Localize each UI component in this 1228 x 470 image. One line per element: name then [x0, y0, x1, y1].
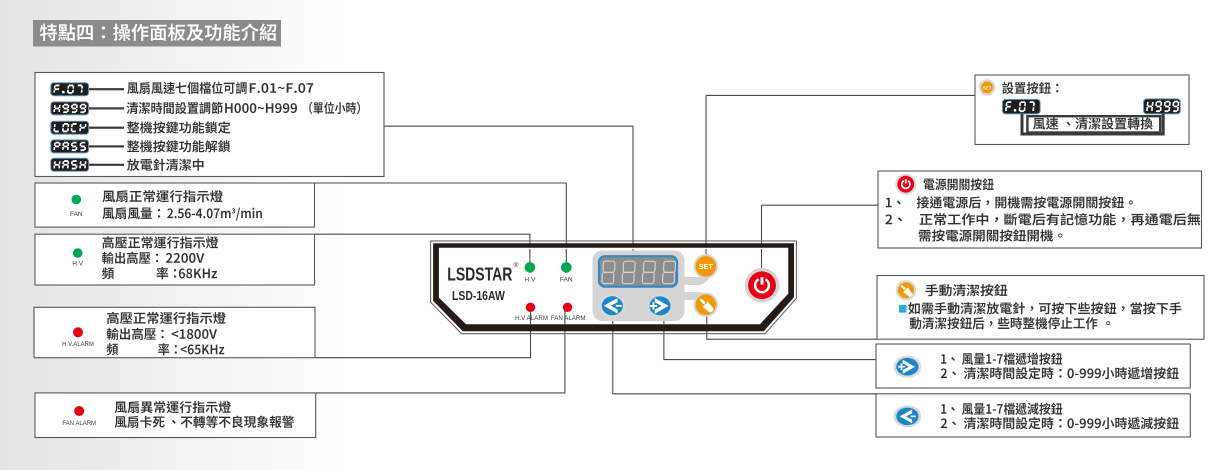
- svg-text:H.V ALARM: H.V ALARM: [515, 315, 548, 322]
- svg-text:LSDSTAR: LSDSTAR: [447, 264, 512, 285]
- svg-text:FAN: FAN: [560, 276, 573, 283]
- svg-text:SET: SET: [699, 262, 714, 271]
- svg-text:®: ®: [514, 261, 519, 269]
- svg-text:SET: SET: [983, 85, 992, 90]
- svg-text:H.V: H.V: [524, 276, 536, 283]
- svg-text:H.V: H.V: [72, 261, 84, 268]
- svg-text:LSD-16AW: LSD-16AW: [452, 289, 505, 303]
- svg-text:FAN ALARM: FAN ALARM: [62, 421, 96, 427]
- svg-text:FAN ALARM: FAN ALARM: [551, 315, 586, 322]
- svg-text:H.V.ALARM: H.V.ALARM: [62, 342, 94, 348]
- svg-text:FAN: FAN: [70, 211, 83, 218]
